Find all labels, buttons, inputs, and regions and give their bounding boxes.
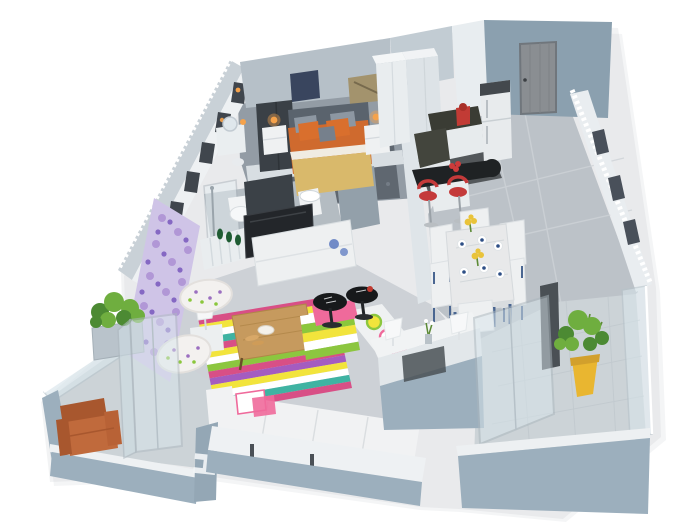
door-handle	[523, 78, 527, 82]
pillow-orange	[298, 121, 320, 141]
front-door	[520, 42, 556, 114]
serving-dish	[258, 326, 274, 335]
wall-art-dark	[290, 70, 320, 102]
vanity-stool	[232, 158, 244, 166]
blue-glass-vase	[340, 248, 348, 256]
blue-glass-vase	[329, 239, 339, 249]
pillow-blue	[318, 126, 336, 142]
balcony-glass-doors	[118, 314, 182, 458]
floor-plan-render: H	[0, 0, 700, 525]
bedside-lamp	[373, 114, 380, 121]
bedroom-back-wall	[239, 34, 392, 108]
mirror	[223, 117, 237, 131]
bedside-lamp	[271, 117, 278, 124]
fridge	[480, 80, 512, 163]
vanity-lamp-glow	[240, 119, 246, 125]
red-cup	[367, 286, 373, 292]
bed	[288, 102, 374, 196]
console-half-wall	[370, 312, 484, 430]
seat-pillow-pink	[252, 395, 276, 417]
window-lamp-glint	[236, 88, 241, 93]
